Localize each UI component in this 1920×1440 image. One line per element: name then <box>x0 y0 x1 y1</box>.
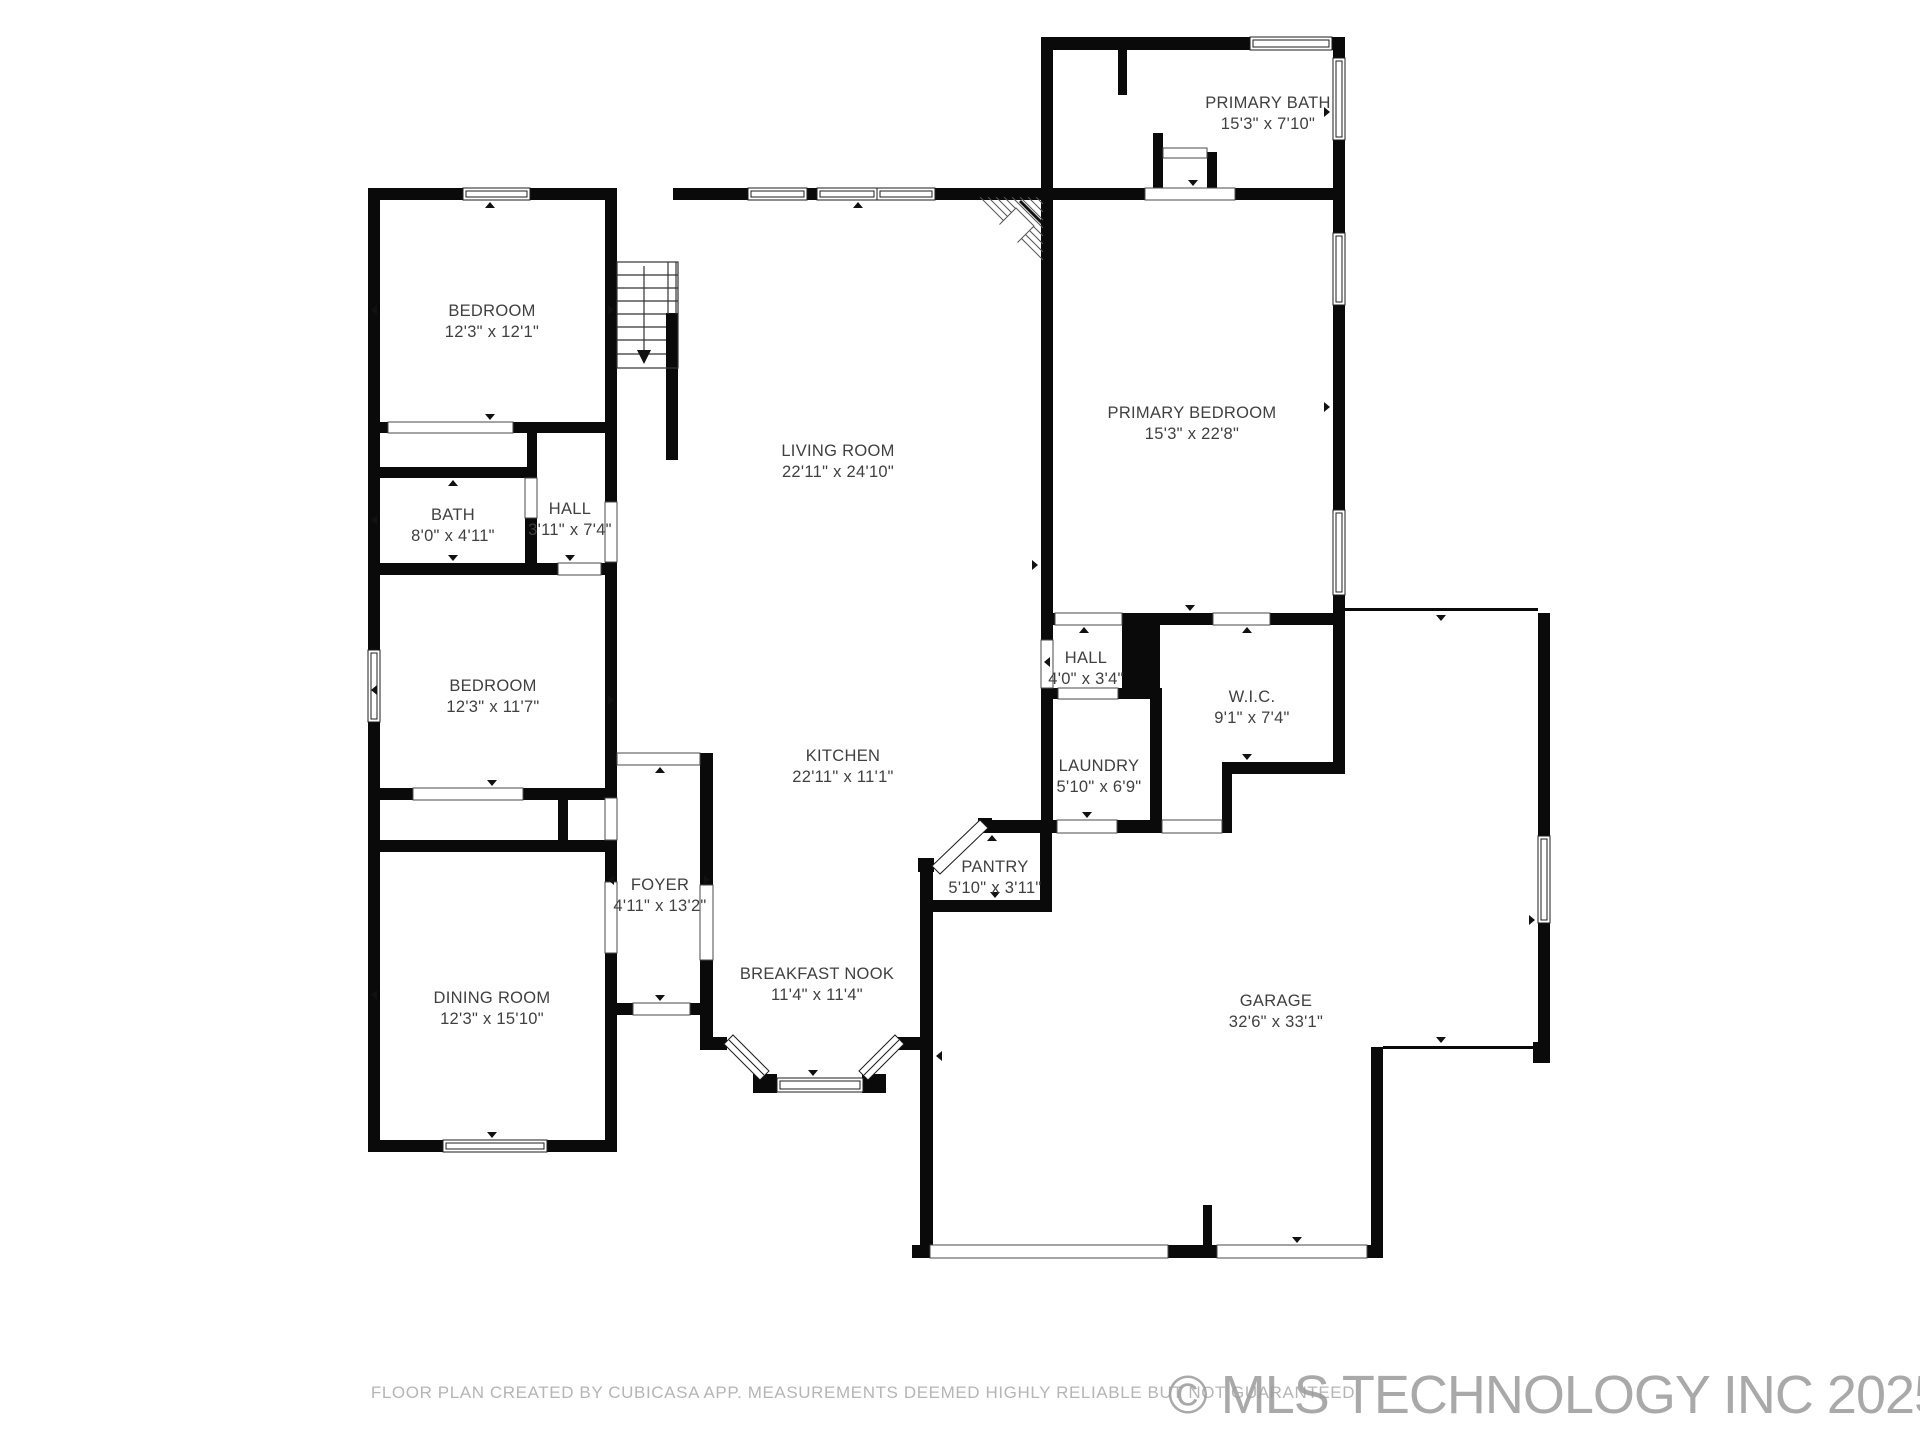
room-dims-kitchen: 22'11" x 11'1" <box>792 768 893 786</box>
room-dims-bath: 8'0" x 4'11" <box>411 527 495 545</box>
room-label-bedroom-1: BEDROOM <box>448 302 535 320</box>
window <box>463 188 530 200</box>
room-label-breakfast-nook: BREAKFAST NOOK <box>740 965 894 983</box>
window <box>443 1140 547 1152</box>
room-labels: PRIMARY BATH 15'3" x 7'10" BEDROOM 12'3"… <box>411 94 1331 1031</box>
window <box>877 188 935 200</box>
room-label-bath: BATH <box>431 506 475 524</box>
windows <box>368 37 1550 1152</box>
room-dims-garage: 32'6" x 33'1" <box>1229 1013 1323 1031</box>
window <box>1250 37 1332 50</box>
room-label-laundry: LAUNDRY <box>1059 757 1140 775</box>
room-label-garage: GARAGE <box>1240 992 1312 1010</box>
fireplace-icon <box>980 197 1043 260</box>
room-dims-living-room: 22'11" x 24'10" <box>782 463 894 481</box>
window <box>1333 233 1345 305</box>
room-label-dining-room: DINING ROOM <box>434 989 551 1007</box>
room-dims-bedroom-1: 12'3" x 12'1" <box>445 323 539 341</box>
window <box>817 188 877 200</box>
room-dims-wic: 9'1" x 7'4" <box>1214 709 1289 727</box>
dimension-ticks <box>371 107 1535 1243</box>
watermark: © MLS TECHNOLOGY INC 2025 <box>1168 1365 1920 1425</box>
window <box>777 1078 863 1092</box>
room-dims-primary-bedroom: 15'3" x 22'8" <box>1145 425 1239 443</box>
bay-window-right <box>859 1035 904 1080</box>
room-dims-dining-room: 12'3" x 15'10" <box>440 1010 544 1028</box>
room-label-wic: W.I.C. <box>1229 688 1276 706</box>
stair-down-arrow <box>637 350 651 364</box>
room-dims-hall-left: 3'11" x 7'4" <box>528 521 612 539</box>
room-dims-laundry: 5'10" x 6'9" <box>1057 778 1142 796</box>
walls <box>368 37 1550 1258</box>
window <box>1333 510 1345 595</box>
room-dims-foyer: 4'11" x 13'2" <box>613 897 706 915</box>
room-label-foyer: FOYER <box>631 876 689 894</box>
room-label-kitchen: KITCHEN <box>806 747 881 765</box>
room-label-primary-bath: PRIMARY BATH <box>1205 94 1331 112</box>
window <box>1333 58 1345 140</box>
window <box>748 188 807 200</box>
window <box>368 650 380 722</box>
room-label-bedroom-2: BEDROOM <box>449 677 536 695</box>
room-dims-bedroom-2: 12'3" x 11'7" <box>446 698 539 716</box>
room-dims-hall-right: 4'0" x 3'4" <box>1048 670 1123 688</box>
room-dims-pantry: 5'10" x 3'11" <box>948 879 1041 897</box>
room-label-hall-left: HALL <box>549 500 591 518</box>
room-dims-primary-bath: 15'3" x 7'10" <box>1221 115 1315 133</box>
room-label-hall-right: HALL <box>1065 649 1107 667</box>
room-label-primary-bedroom: PRIMARY BEDROOM <box>1108 404 1277 422</box>
room-label-living-room: LIVING ROOM <box>781 442 894 460</box>
bay-window-left <box>724 1035 769 1080</box>
room-dims-breakfast-nook: 11'4" x 11'4" <box>771 986 863 1004</box>
floor-plan: PRIMARY BATH 15'3" x 7'10" BEDROOM 12'3"… <box>0 0 1920 1440</box>
room-label-pantry: PANTRY <box>961 858 1028 876</box>
window <box>1538 836 1550 923</box>
